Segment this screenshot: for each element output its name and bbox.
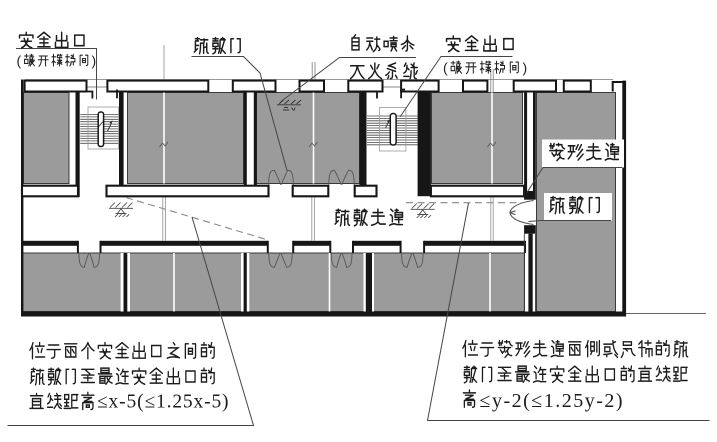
svg-text:): ) [92,53,97,69]
svg-text:≤y-2(≤1.25y-2): ≤y-2(≤1.25y-2) [480,390,625,412]
svg-text:≤x-5(≤1.25x-5): ≤x-5(≤1.25x-5) [97,392,229,413]
svg-text:(: ( [443,60,448,76]
svg-text:(: ( [17,53,22,69]
svg-text:): ) [523,60,528,76]
